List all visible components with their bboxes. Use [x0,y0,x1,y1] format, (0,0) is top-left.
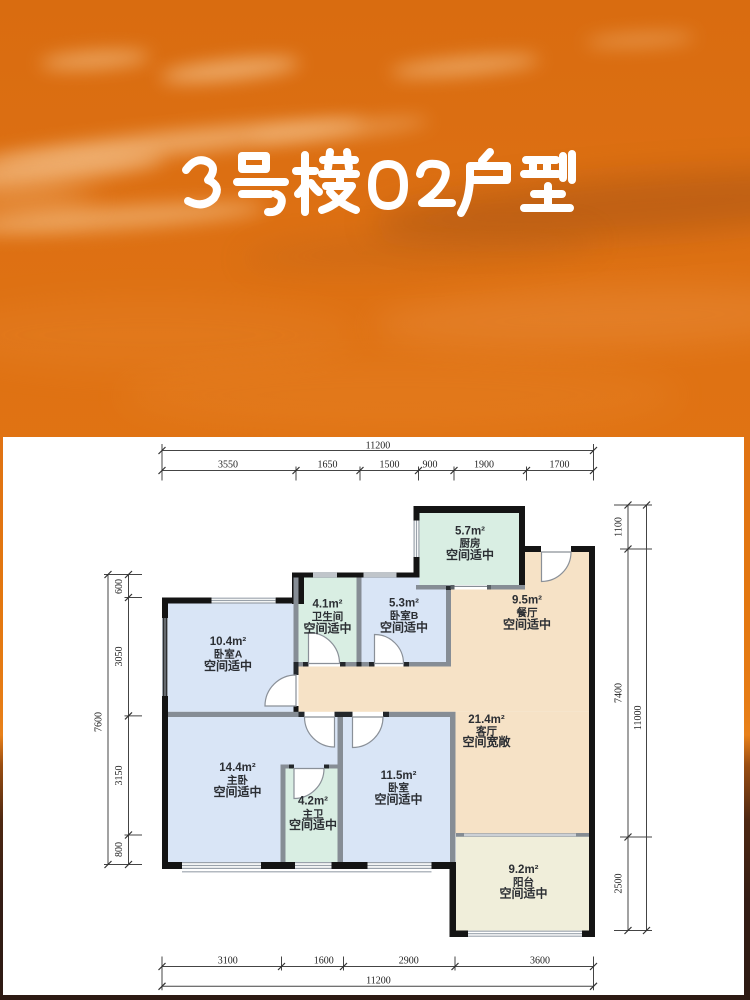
svg-text:2500: 2500 [614,874,625,894]
svg-text:空间适中: 空间适中 [446,547,494,562]
svg-text:空间适中: 空间适中 [374,792,422,807]
svg-text:3050: 3050 [114,647,125,667]
svg-text:1100: 1100 [614,517,625,537]
svg-text:3600: 3600 [530,956,550,967]
svg-text:11000: 11000 [633,705,644,730]
svg-text:空间适中: 空间适中 [380,620,428,635]
svg-text:空间适中: 空间适中 [204,658,252,673]
svg-text:5.3m²: 5.3m² [389,598,419,610]
svg-text:21.4m²: 21.4m² [468,714,505,726]
svg-text:空间适中: 空间适中 [213,784,261,799]
svg-text:1650: 1650 [318,460,338,471]
svg-text:3100: 3100 [218,956,238,967]
svg-text:1900: 1900 [474,460,494,471]
svg-text:9.2m²: 9.2m² [508,864,538,876]
svg-text:14.4m²: 14.4m² [219,762,256,774]
svg-text:空间适中: 空间适中 [499,886,547,901]
svg-text:11200: 11200 [366,975,391,986]
svg-text:空间适中: 空间适中 [289,817,337,832]
svg-text:5.7m²: 5.7m² [455,526,485,538]
svg-text:7600: 7600 [94,712,105,732]
svg-text:600: 600 [114,579,125,594]
svg-text:空间宽敞: 空间宽敞 [462,734,511,749]
svg-text:3150: 3150 [114,766,125,786]
svg-text:1600: 1600 [314,956,334,967]
svg-text:空间适中: 空间适中 [503,617,551,632]
svg-text:1700: 1700 [550,460,570,471]
svg-text:空间适中: 空间适中 [303,621,351,636]
svg-text:7400: 7400 [614,683,625,703]
svg-text:900: 900 [423,460,438,471]
svg-text:11.5m²: 11.5m² [381,770,417,782]
svg-text:11200: 11200 [366,441,391,452]
svg-text:3550: 3550 [218,460,238,471]
svg-text:9.5m²: 9.5m² [512,595,542,607]
svg-text:800: 800 [114,842,125,857]
svg-text:10.4m²: 10.4m² [210,636,247,648]
svg-text:2900: 2900 [399,956,419,967]
svg-text:4.2m²: 4.2m² [298,796,328,808]
svg-text:4.1m²: 4.1m² [312,599,342,611]
svg-text:1500: 1500 [380,460,400,471]
